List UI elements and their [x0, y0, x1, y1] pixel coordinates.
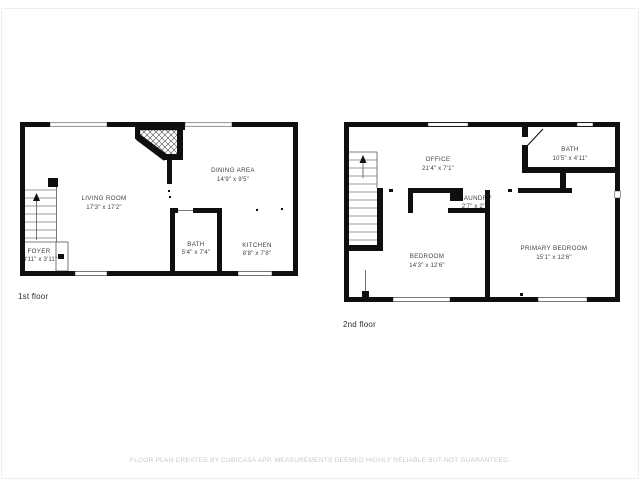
room-dims-label: 8'8" x 7'8"	[243, 251, 271, 257]
room-dims-label: 21'4" x 7'1"	[422, 166, 454, 172]
room-dims-label: 14'3" x 12'6"	[409, 263, 445, 269]
floor-label: 1st floor	[18, 292, 48, 301]
room-name-label: BATH	[561, 146, 578, 153]
room-dims-label: 3'11" x 3'11"	[23, 257, 58, 263]
room-dims-label: 10'5" x 4'11"	[552, 156, 587, 162]
floor-label: 2nd floor	[343, 320, 376, 329]
window	[185, 123, 232, 126]
room-name-label: OFFICE	[426, 156, 451, 163]
floorplan-page: LIVING ROOM 17'3" x 17'2" DINING AREA 14…	[0, 0, 640, 480]
room-name-label: BEDROOM	[410, 253, 444, 260]
door-hinge-mark	[362, 291, 369, 297]
window	[393, 297, 450, 301]
door-hinge-mark	[58, 254, 64, 259]
door-swing	[527, 129, 543, 146]
room-labels-1st-floor: LIVING ROOM 17'3" x 17'2" DINING AREA 14…	[23, 167, 272, 263]
floorplan-1st-floor: LIVING ROOM 17'3" x 17'2" DINING AREA 14…	[15, 115, 305, 307]
room-dims-label: 14'9" x 9'5"	[217, 177, 249, 183]
room-name-label: KITCHEN	[242, 242, 272, 249]
measurement-dots	[168, 190, 283, 211]
window	[577, 123, 593, 126]
window	[615, 191, 620, 198]
window	[238, 271, 272, 275]
fireplace-icon	[135, 125, 185, 160]
disclaimer-text: FLOOR PLAN CREATED BY CUBICASA APP. MEAS…	[0, 457, 640, 464]
stairs-up-arrow-icon	[33, 193, 40, 201]
room-dims-label: 17'3" x 17'2"	[86, 205, 122, 211]
room-dims-label: 15'1" x 12'6"	[536, 255, 572, 261]
room-name-label: PRIMARY BEDROOM	[521, 245, 588, 252]
stairs-up-arrow-icon	[360, 155, 367, 163]
interior-walls-1st-floor	[167, 157, 222, 276]
room-name-label: BATH	[187, 241, 204, 248]
room-name-label: LIVING ROOM	[81, 195, 126, 202]
window	[538, 297, 587, 301]
room-name-label: DINING AREA	[211, 167, 255, 174]
window	[75, 271, 107, 275]
window	[428, 123, 468, 126]
room-name-label: FOYER	[27, 248, 50, 255]
floorplan-2nd-floor: OFFICE 21'4" x 7'1" BATH 10'5" x 4'11" L…	[340, 110, 630, 340]
staircase-2nd-floor	[349, 152, 377, 240]
window	[50, 123, 107, 126]
room-labels-2nd-floor: OFFICE 21'4" x 7'1" BATH 10'5" x 4'11" L…	[409, 146, 587, 269]
room-dims-label: 5'4" x 7'4"	[182, 250, 210, 256]
